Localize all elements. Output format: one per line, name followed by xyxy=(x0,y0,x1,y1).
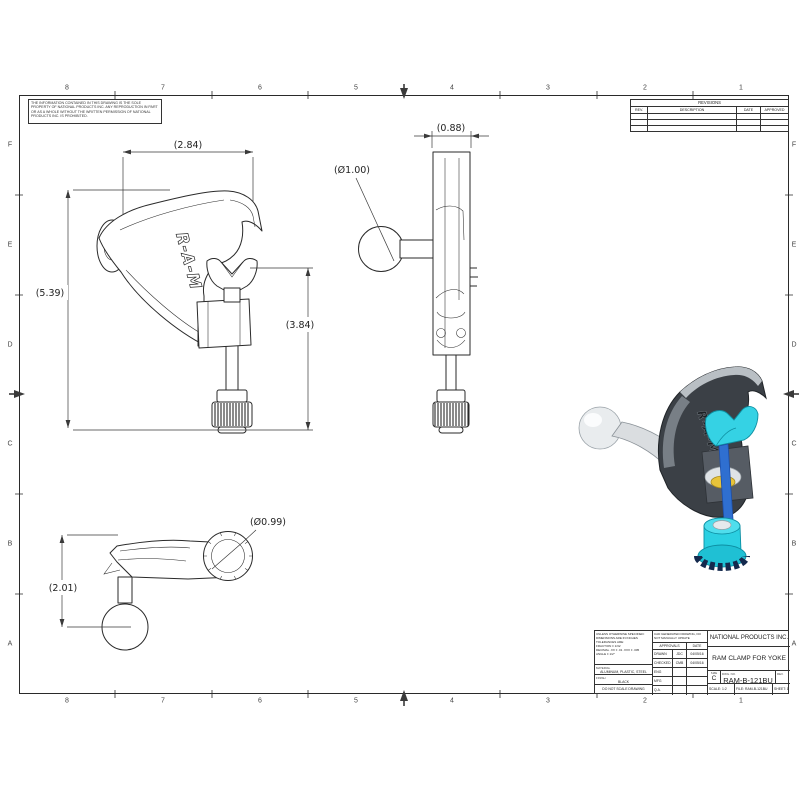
jaw-stem xyxy=(224,288,240,302)
date-header: DATE xyxy=(686,643,707,650)
approval-row-name xyxy=(672,668,686,677)
bottom-view xyxy=(102,530,256,650)
approval-row-name xyxy=(672,677,686,686)
approval-row-name: JDC xyxy=(672,650,686,659)
approval-row-label: MFG APPR. xyxy=(652,677,672,686)
v-jaw xyxy=(207,258,257,290)
size-cell: SIZE C xyxy=(707,671,720,684)
approval-row-label: CHECKED xyxy=(652,659,672,668)
material-cell: MATERIAL ALUMINUM, PLASTIC, STEEL xyxy=(595,665,652,675)
scale-cell: SCALE: 1:2 xyxy=(707,684,734,695)
dim-boss-diameter: (Ø0.99) xyxy=(250,517,286,528)
rev-label: REV. xyxy=(776,671,790,676)
front-view: R-A-M xyxy=(97,191,262,433)
approval-row-label: Q.A. xyxy=(652,686,672,695)
ball-stem-top xyxy=(118,577,132,603)
drawing-title: RAM CLAMP FOR YOKE xyxy=(707,647,790,671)
side-body xyxy=(433,152,470,355)
dim-jaw-to-knob: (3.84) xyxy=(286,320,315,331)
isometric-view: R-A-M xyxy=(579,367,766,567)
approval-row-label: ENG APPR. xyxy=(652,668,672,677)
sheet-cell: SHEET: 1 OF 1 xyxy=(772,684,790,695)
approval-row-name xyxy=(672,686,686,695)
file-cell: FILE: RAM-B-121BU xyxy=(734,684,772,695)
approval-row-date: 04/05/16 xyxy=(686,650,707,659)
size-value: C xyxy=(708,675,720,682)
approvals-header: APPROVALS xyxy=(652,643,686,650)
iso-ball xyxy=(579,407,621,449)
dim-overall-height: (5.39) xyxy=(36,288,65,299)
drawing-number: RAM-B-121BU xyxy=(721,676,775,685)
cad-note: CAD GENERATED DRAWING, DO NOT MANUALLY U… xyxy=(652,631,707,643)
drawing-sheet: 8 7 6 5 4 3 2 1 8 7 6 5 4 3 2 1 F E D C … xyxy=(0,0,800,800)
do-not-scale-note: DO NOT SCALE DRAWING xyxy=(595,685,652,695)
finish-cell: FINISH BLACK xyxy=(595,675,652,685)
side-knob-flange xyxy=(437,390,465,402)
approval-row-date xyxy=(686,668,707,677)
title-block: UNLESS OTHERWISE SPECIFIED: DIMENSIONS A… xyxy=(594,630,789,694)
dwg-no-cell: DWG. NO. RAM-B-121BU xyxy=(720,671,775,684)
ball-arm xyxy=(400,240,433,258)
approval-row-date: 04/05/16 xyxy=(686,659,707,668)
approval-row-name: CMB xyxy=(672,659,686,668)
dimension-lines: (2.84) (5.39) (3.84) (0.88) (Ø1.00) (2.0… xyxy=(32,123,489,627)
iso-ball-highlight xyxy=(584,413,602,427)
screw-boss-circle xyxy=(204,532,253,581)
company-name: NATIONAL PRODUCTS INC. xyxy=(707,631,790,647)
dim-ball-diameter: (Ø1.00) xyxy=(334,165,370,176)
dim-front-width: (2.84) xyxy=(174,140,203,151)
screw-boss xyxy=(197,299,251,348)
side-view xyxy=(359,152,479,433)
tolerance-note: UNLESS OTHERWISE SPECIFIED: DIMENSIONS A… xyxy=(595,631,652,665)
side-knob-bottom xyxy=(439,427,463,433)
side-screw-shaft xyxy=(446,355,456,392)
rev-cell: REV. xyxy=(775,671,790,684)
knob-flange xyxy=(217,390,247,402)
approval-row-date xyxy=(686,686,707,695)
material-value: ALUMINUM, PLASTIC, STEEL xyxy=(595,670,652,674)
approval-row-date xyxy=(686,677,707,686)
dim-arm-drop: (2.01) xyxy=(49,583,78,594)
dim-side-width: (0.88) xyxy=(437,123,466,134)
finish-value: BLACK xyxy=(595,680,652,684)
approval-row-label: DRAWN xyxy=(652,650,672,659)
iso-knob-insert xyxy=(713,521,731,530)
